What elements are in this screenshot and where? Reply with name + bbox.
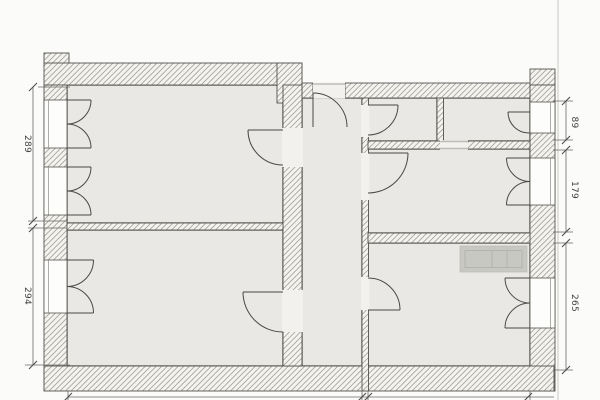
room-top-right-1-floor bbox=[368, 98, 437, 141]
dimension-label-289: 289 bbox=[22, 135, 32, 153]
corridor-floor bbox=[302, 98, 362, 366]
doorway-top-left-room bbox=[282, 128, 303, 167]
doorway-bottom-left-room bbox=[282, 290, 303, 332]
wall-interior-right-mid bbox=[368, 233, 530, 243]
room-middle-right-floor bbox=[368, 149, 530, 233]
doorway-top-right-room bbox=[361, 105, 370, 137]
wall-bottom-exterior bbox=[44, 366, 554, 391]
floorplan-svg: 289 294 89 179 265 bbox=[0, 0, 600, 400]
counter-block bbox=[460, 246, 527, 272]
wall-divider-top-rooms bbox=[437, 98, 444, 141]
furniture bbox=[460, 246, 527, 272]
room-top-right-2-floor bbox=[443, 98, 530, 141]
dimension-label-179: 179 bbox=[569, 181, 579, 199]
room-top-left-floor bbox=[67, 85, 283, 223]
wall-entry-step bbox=[302, 83, 313, 98]
wall-top-west-section bbox=[44, 63, 302, 85]
doorway-entry bbox=[313, 83, 345, 99]
window-right-3 bbox=[530, 278, 555, 328]
window-left-3 bbox=[44, 260, 67, 313]
doorway-bottom-right-room bbox=[361, 277, 370, 310]
window-right-2 bbox=[530, 158, 555, 205]
window-right-1 bbox=[530, 102, 555, 133]
dimension-label-89: 89 bbox=[569, 116, 579, 128]
wall-top-east-section bbox=[345, 83, 530, 98]
pilaster-top-right bbox=[530, 69, 555, 85]
dimension-label-294: 294 bbox=[22, 287, 32, 305]
window-left-1 bbox=[44, 100, 67, 148]
dimension-label-265: 265 bbox=[569, 294, 579, 312]
wall-corridor-east bbox=[362, 98, 369, 391]
wall-interior-left-rooms bbox=[67, 223, 283, 230]
window-left-2 bbox=[44, 167, 67, 215]
floorplan-scan-page: 289 294 89 179 265 bbox=[0, 0, 600, 400]
room-bottom-left-floor bbox=[67, 230, 283, 366]
